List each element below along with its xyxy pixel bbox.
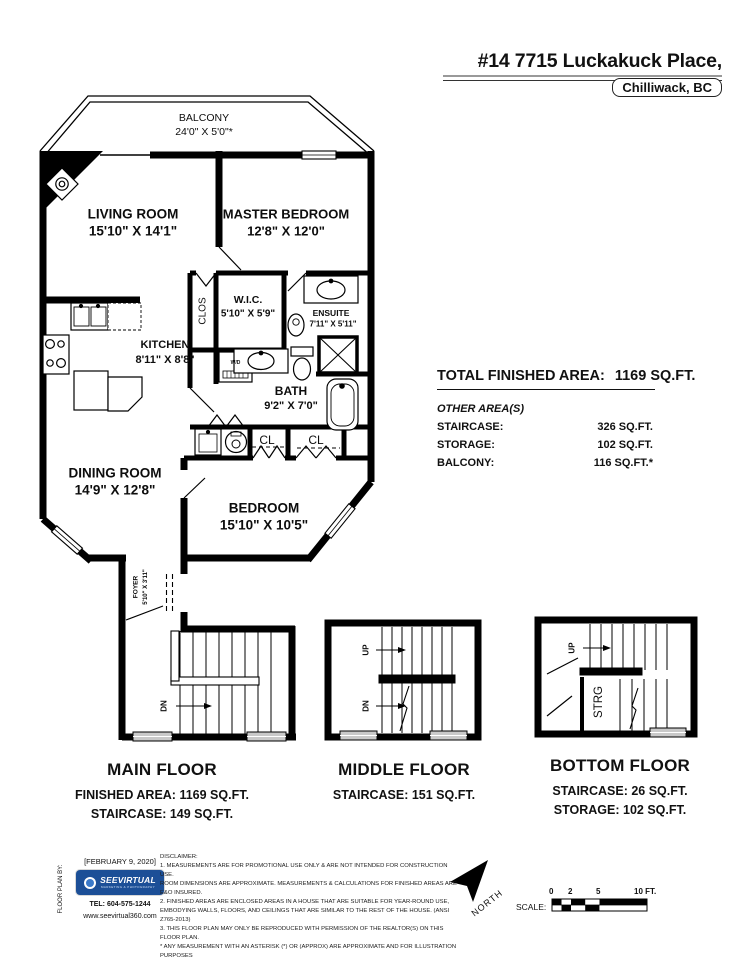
living-room-label: LIVING ROOM (88, 207, 179, 222)
wic-dims: 5'10" X 5'9" (221, 309, 275, 320)
ensuite-dims: 7'11" X 5'11" (310, 320, 357, 329)
kitchen-counter (108, 303, 141, 330)
ensuite-sink-icon (304, 276, 358, 303)
bedroom-label: BEDROOM (229, 501, 300, 516)
kitchen-sink-icon (71, 303, 108, 330)
bath-sink-icon (234, 349, 288, 373)
city-badge: Chilliwack, BC (612, 78, 722, 97)
ensuite-toilet-icon (288, 314, 304, 336)
other-areas-label: OTHER AREA(S) (437, 403, 727, 415)
total-area-value: 1169 SQ.FT. (615, 368, 696, 384)
scale-tick-5: 5 (596, 887, 600, 896)
foyer-label: FOYER (133, 576, 140, 598)
date-label: [FEBRUARY 9, 2020] (74, 857, 166, 866)
dining-room-dims: 14'9" X 12'8" (75, 483, 156, 498)
wic-label: W.I.C. (234, 294, 263, 306)
fireplace-icon (40, 151, 103, 214)
main-dn-label: DN (160, 700, 169, 712)
page-title: #14 7715 Luckakuck Place, (478, 50, 722, 73)
summary-row: STORAGE: 102 SQ.FT. (437, 439, 653, 451)
dining-room-label: DINING ROOM (69, 466, 162, 481)
master-bedroom-dims: 12'8" X 12'0" (247, 224, 325, 239)
bath-label: BATH (275, 384, 307, 398)
main-floor-caption: MAIN FLOOR FINISHED AREA: 1169 SQ.FT. ST… (42, 760, 282, 824)
bathtub-icon (327, 379, 358, 430)
ensuite-label: ENSUITE (313, 308, 350, 318)
kitchen-label: KITCHEN (141, 339, 190, 351)
area-summary: TOTAL FINISHED AREA:1169 SQ.FT. OTHER AR… (437, 368, 727, 469)
middle-staircase (376, 627, 455, 733)
bath-dims: 9'2" X 7'0" (264, 400, 318, 412)
kitchen-island (74, 371, 142, 411)
summary-rule (437, 389, 655, 390)
scale-tick-10: 10 FT. (634, 887, 656, 896)
main-staircase (171, 631, 271, 735)
closet-label: CLOS (198, 297, 209, 324)
scale-label: SCALE: (516, 902, 546, 912)
shower-icon (319, 337, 357, 373)
phone-label: TEL: 604-575-1244 (74, 901, 166, 908)
bottom-floor-box (538, 620, 694, 734)
window-bedroom-corner (325, 504, 355, 539)
storage-label: STRG (593, 686, 605, 718)
bottom-staircase (547, 624, 667, 731)
floor-plan-by-label: FLOOR PLAN BY: (58, 864, 64, 913)
disclaimer: DISCLAIMER: 1. MEASUREMENTS ARE FOR PROM… (160, 853, 460, 960)
foyer-dims: 5'10" X 3'11" (143, 569, 149, 605)
bottom-stair-window (650, 728, 686, 737)
stove-icon (43, 335, 69, 374)
summary-row: STAIRCASE: 326 SQ.FT. (437, 421, 653, 433)
window-dining-corner (52, 526, 83, 554)
globe-icon (84, 877, 96, 889)
logo-text: SEEVIRTUAL (100, 876, 156, 885)
bath-toilet2-icon (226, 432, 247, 453)
closet2-label: CL (308, 433, 323, 447)
total-area-label: TOTAL FINISHED AREA: (437, 368, 605, 384)
logo-subtext: MARKETING & PHOTOGRAPHY (101, 886, 155, 889)
website-label: www.seevirtual360.com (74, 913, 166, 920)
washer-dryer-label: W/D (231, 360, 241, 366)
entry-door-dashed (167, 574, 173, 612)
kitchen-dims: 8'11" X 8'8" (135, 354, 194, 366)
living-room-dims: 15'10" X 14'1" (89, 224, 177, 239)
bedroom-dims: 15'10" X 10'5" (220, 518, 308, 533)
closet1-label: CL (259, 433, 274, 447)
bath-toilet-icon (291, 347, 313, 380)
summary-row: BALCONY: 116 SQ.FT.* (437, 457, 653, 469)
master-bedroom-label: MASTER BEDROOM (223, 207, 349, 222)
middle-up-label: UP (362, 644, 371, 655)
balcony-dims: 24'0" X 5'0"* (175, 126, 233, 138)
bottom-floor-caption: BOTTOM FLOOR STAIRCASE: 26 SQ.FT. STORAG… (512, 756, 728, 820)
middle-dn-label: DN (362, 700, 371, 712)
scale-tick-2: 2 (568, 887, 572, 896)
seevirtual-logo: SEEVIRTUAL MARKETING & PHOTOGRAPHY (76, 870, 164, 895)
window-master (302, 151, 336, 159)
floor-plan-page: #14 7715 Luckakuck Place, Chilliwack, BC… (0, 0, 741, 960)
bottom-up-label: UP (568, 642, 577, 653)
bath-vanity-icon (195, 429, 221, 455)
scale-bar (552, 899, 647, 911)
scale-tick-0: 0 (549, 887, 553, 896)
middle-floor-caption: MIDDLE FLOOR STAIRCASE: 151 SQ.FT. (296, 760, 512, 805)
balcony-label: BALCONY (179, 112, 229, 124)
